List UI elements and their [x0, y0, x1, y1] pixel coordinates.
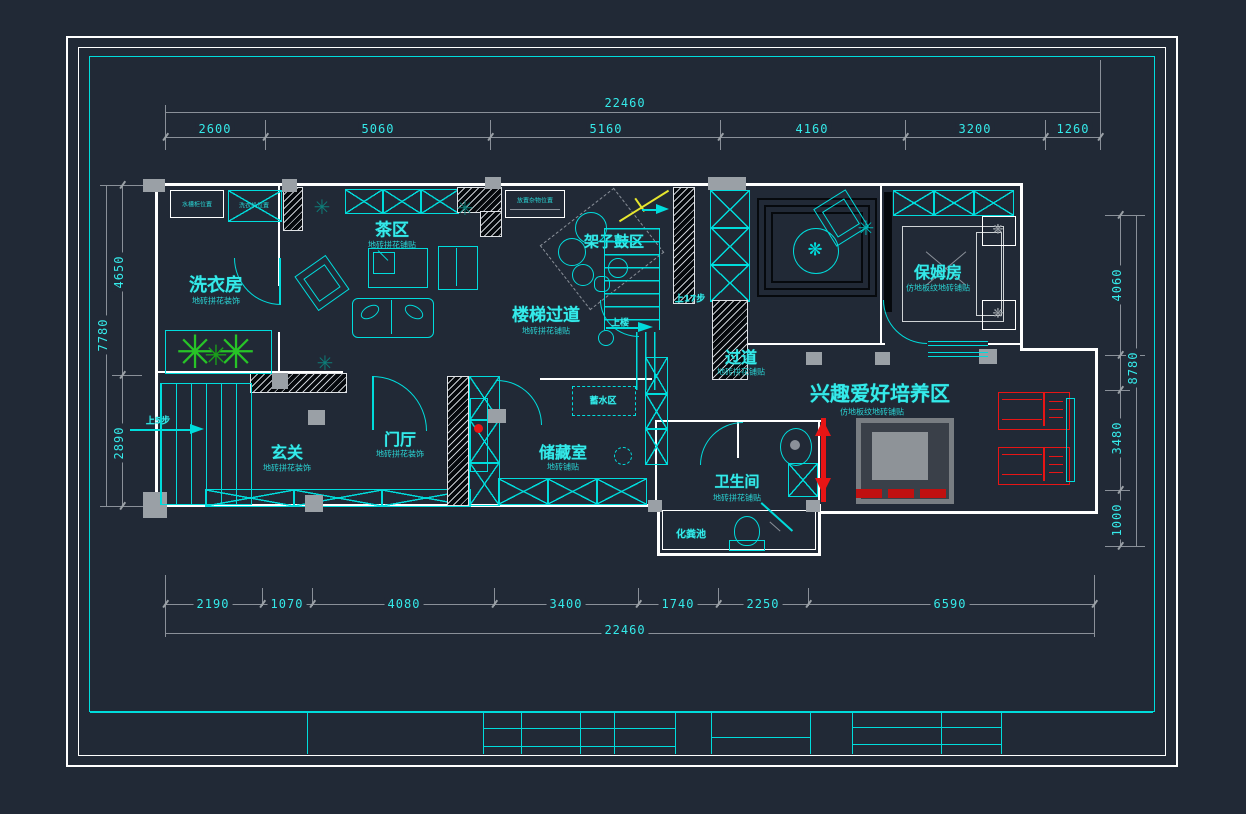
room-note-storage: 地砖铺贴 — [547, 462, 579, 473]
titleblock-hline — [852, 744, 1001, 745]
wall-septic-bottom — [657, 553, 821, 556]
red-bed-line — [1002, 474, 1042, 475]
dim-right-total: 8780 — [1126, 349, 1140, 388]
red-bed-line — [1049, 456, 1063, 457]
titleblock-vline — [675, 713, 676, 754]
room-note-nanny: 仿地板纹地砖铺贴 — [906, 283, 970, 294]
red-bed — [998, 392, 1070, 430]
column — [282, 179, 297, 192]
dim-right-lower: 1000 — [1110, 501, 1124, 540]
closet-xbox — [710, 227, 750, 266]
storage-bottom-xbox — [596, 478, 647, 505]
shelf-note: 放置杂物位置 — [517, 196, 553, 205]
wall-hatch-stair-left-b — [480, 211, 502, 237]
dim-top-4: 4160 — [793, 122, 832, 136]
titleblock-hline — [711, 737, 810, 738]
bath-xbox — [788, 463, 818, 497]
dim-left-lower: 2890 — [112, 424, 126, 463]
section-arrow — [656, 204, 669, 214]
dim-right-middle: 3480 — [1110, 419, 1124, 458]
dim-left-upper: 4650 — [112, 253, 126, 292]
dim-top-3: 5160 — [587, 122, 626, 136]
dim-ext — [165, 105, 166, 150]
column — [308, 410, 325, 425]
toilet-tank — [729, 540, 765, 551]
red-bed-line — [1049, 464, 1063, 465]
lamp-icon: ❋ — [993, 307, 1004, 322]
hobby-table-top — [872, 432, 928, 480]
sink-cabinet-note: 水槽柜位置 — [182, 200, 212, 209]
column — [648, 500, 662, 512]
dim-ext — [1105, 215, 1145, 216]
drum — [572, 264, 594, 286]
wall-entry-hatch — [250, 373, 347, 393]
cabinet-xbox — [345, 189, 383, 214]
dim-bottom-4: 3400 — [547, 597, 586, 611]
closet-xbox — [710, 264, 750, 302]
red-floor-strip — [920, 489, 946, 498]
storage-right-xbox — [645, 428, 668, 465]
table-plant-decor: ❋ — [807, 240, 822, 261]
wardrobe-xbox — [893, 190, 935, 216]
red-bed-line — [1049, 409, 1063, 410]
room-label-storage: 储藏室 — [539, 439, 587, 463]
dim-ext — [1094, 575, 1095, 637]
red-bed-line — [1049, 417, 1063, 418]
wardrobe-xbox — [933, 190, 975, 216]
room-note-foyer: 地砖拼花装饰 — [376, 449, 424, 460]
entry-stair-arrow — [190, 424, 204, 434]
cabinet-xbox — [421, 189, 459, 214]
dim-ext — [1105, 546, 1145, 547]
dim-line-top-total — [165, 112, 1100, 113]
titleblock-vline — [521, 713, 522, 754]
titleblock-vline — [852, 713, 853, 754]
plant-icon: ✳ — [204, 342, 227, 370]
titleblock-hline — [483, 746, 675, 747]
dim-top-1: 2600 — [196, 122, 235, 136]
room-label-nanny: 保姆房 — [914, 259, 962, 283]
wall-compass-decor: ✳ — [457, 198, 474, 218]
titleblock-vline — [307, 713, 308, 754]
sink-cabinet-box: 水槽柜位置 — [170, 190, 224, 218]
wall-bottom-right — [818, 511, 1098, 514]
red-bed-divider — [1043, 448, 1045, 481]
storage-bottom-xbox — [498, 478, 549, 505]
entry-door-leaf — [372, 376, 374, 430]
room-label-tea: 茶区 — [375, 216, 409, 241]
dim-bottom-3: 4080 — [385, 597, 424, 611]
wall-left — [155, 183, 158, 508]
room-note-bath: 地砖拼花铺贴 — [713, 493, 761, 504]
wall-nanny-black-band — [884, 192, 892, 312]
wall-compass-decor: ✳ — [314, 197, 331, 217]
red-arrow-down — [815, 478, 831, 494]
stair-lower-treads — [636, 332, 660, 390]
red-bed — [998, 447, 1070, 485]
window-hobby-top — [928, 352, 988, 360]
room-label-entry: 玄关 — [271, 439, 303, 463]
dim-ext — [112, 375, 142, 376]
red-bed-line — [1002, 454, 1042, 455]
room-label-laundry: 洗衣房 — [189, 271, 243, 297]
titleblock-vline — [580, 713, 581, 754]
red-bed-line — [1049, 401, 1063, 402]
compass-decor: ✳ — [858, 218, 875, 238]
wall-hatch-tea-left — [283, 187, 303, 231]
titleblock-hline — [483, 728, 675, 729]
titleblock-vline — [711, 713, 712, 754]
cabinet-xbox — [383, 189, 421, 214]
side-chair — [438, 246, 478, 290]
room-label-stairhall: 楼梯过道 — [512, 301, 580, 326]
closet-xbox — [710, 190, 750, 229]
entry-stair-label: 上5步 — [146, 414, 170, 427]
titleblock-vline — [941, 713, 942, 754]
dim-bottom-1: 2190 — [194, 597, 233, 611]
room-note-tea: 地砖拼花铺贴 — [368, 240, 416, 251]
column — [305, 495, 323, 512]
red-marker-dot — [474, 424, 483, 433]
titleblock-vline — [1001, 713, 1002, 754]
shelf-note-box: 放置杂物位置 — [505, 190, 565, 218]
dim-top-5: 3200 — [956, 122, 995, 136]
room-note-corridor: 地砖拼花铺贴 — [717, 367, 765, 378]
water-zone-label: 蓄水区 — [589, 394, 616, 407]
dim-bottom-total: 22460 — [601, 623, 648, 637]
room-note-entry: 地砖拼花装饰 — [263, 463, 311, 474]
wall-hatch-stair-right — [673, 187, 695, 304]
wall-corridor-bottom-a — [748, 343, 885, 345]
dim-bottom-7: 6590 — [931, 597, 970, 611]
wall-nanny-left — [880, 186, 882, 344]
wall-right-step — [1022, 348, 1098, 351]
titleblock-hline — [852, 727, 1001, 728]
dim-top-6: 1260 — [1054, 122, 1093, 136]
washer-note: 洗衣机位置 — [239, 201, 269, 210]
dim-line-top-segments — [165, 137, 1100, 138]
column — [143, 179, 165, 192]
wardrobe-xbox — [973, 190, 1014, 216]
wall-right-outer — [1095, 348, 1098, 514]
room-label-septic: 化粪池 — [676, 526, 706, 541]
room-label-corridor: 过道 — [725, 344, 757, 368]
dim-bottom-5: 1740 — [659, 597, 698, 611]
column — [272, 373, 288, 389]
window-lounge-bottom — [928, 341, 988, 349]
stair-steps-label: 上17步 — [675, 292, 706, 305]
column — [875, 352, 890, 365]
laundry-door-leaf — [279, 258, 281, 304]
red-bed-line — [1049, 472, 1063, 473]
wall-compass-decor: ✳ — [317, 353, 334, 373]
red-bed-line — [1002, 399, 1042, 400]
stair-arrow-tail — [606, 327, 640, 329]
entry-stair-arrow-tail — [130, 429, 192, 431]
window-hobby-right — [1066, 398, 1075, 482]
shelf-line — [510, 209, 560, 210]
room-label-bath: 卫生间 — [714, 471, 759, 492]
column — [806, 500, 820, 512]
red-bed-line — [1002, 419, 1042, 420]
red-floor-strip — [856, 489, 882, 498]
titleblock-divider — [90, 712, 1153, 713]
dim-right-upper: 4060 — [1110, 266, 1124, 305]
dim-left-total: 7780 — [96, 316, 110, 355]
wall-laundry-right-b — [278, 332, 280, 374]
storage-bottom-xbox — [547, 478, 598, 505]
room-label-hobby: 兴趣爱好培养区 — [810, 378, 950, 407]
dim-top-total: 22460 — [601, 96, 648, 110]
room-note-hobby: 仿地板纹地砖铺贴 — [840, 407, 904, 418]
red-arrow-up — [815, 420, 831, 436]
stair-arrow — [638, 322, 653, 332]
sofa-divider — [391, 300, 392, 334]
drum — [558, 238, 586, 266]
dim-bottom-6: 2250 — [744, 597, 783, 611]
dim-top-2: 5060 — [359, 122, 398, 136]
entry-stair-treads — [160, 383, 252, 505]
side-chair-line — [456, 248, 457, 286]
dim-bottom-2: 1070 — [268, 597, 307, 611]
column — [485, 177, 501, 189]
storage-panel — [470, 398, 488, 472]
storage-left-hatch — [447, 376, 469, 506]
floor-drain — [614, 447, 632, 465]
room-label-foyer: 门厅 — [384, 426, 416, 450]
titleblock-vline — [483, 713, 484, 754]
sink-drain — [790, 440, 800, 450]
column — [806, 352, 822, 365]
wall-corridor-bottom-b — [988, 343, 1021, 345]
room-note-stairhall: 地砖拼花铺贴 — [522, 326, 570, 337]
storage-right-xbox — [645, 393, 668, 430]
cad-floorplan-canvas[interactable]: 22460 2600 5060 5160 4160 3200 1260 2190… — [0, 0, 1246, 814]
titleblock-vline — [614, 713, 615, 754]
stair-newel — [598, 330, 614, 346]
red-floor-strip — [888, 489, 914, 498]
column — [708, 177, 746, 190]
titleblock-vline — [810, 713, 811, 754]
dim-ext — [165, 575, 166, 637]
lamp-icon: ❋ — [993, 223, 1004, 238]
wall-right-upper — [1020, 183, 1023, 351]
red-bed-divider — [1043, 393, 1045, 426]
room-note-laundry: 地砖拼花装饰 — [192, 296, 240, 307]
